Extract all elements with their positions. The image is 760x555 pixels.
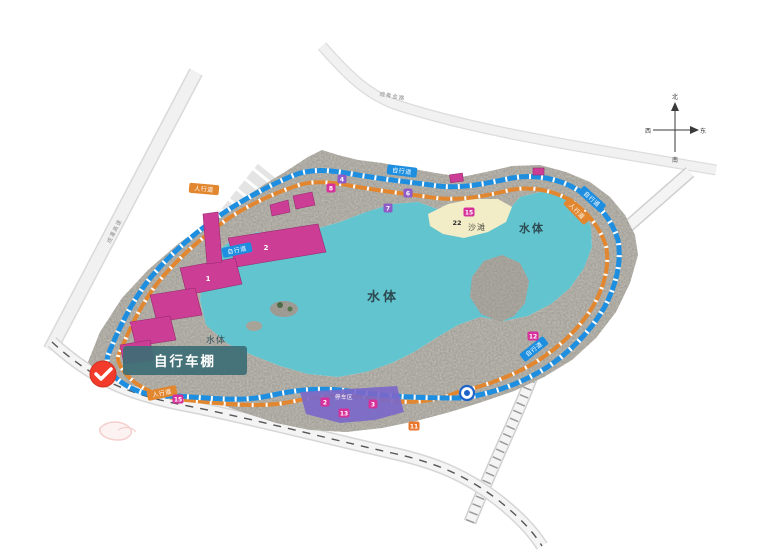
marker-8[interactable]: 8 (327, 184, 336, 193)
tooltip[interactable]: 自行车棚 (123, 346, 247, 375)
building-2-number: 2 (264, 244, 269, 252)
marker-7[interactable]: 7 (384, 204, 393, 213)
compass-east-label: 东 (700, 127, 706, 135)
svg-text:6: 6 (406, 190, 410, 197)
compass-rose: 北 南 西 东 (645, 93, 706, 164)
map-canvas: 成灌高速 成青金路 (0, 0, 760, 555)
marker-15-beach[interactable]: 15 (464, 208, 475, 217)
svg-text:4: 4 (340, 176, 344, 183)
water-label-west: 水体 (206, 334, 226, 346)
compass-west-label: 西 (645, 128, 651, 135)
water-label-east: 水体 (519, 221, 545, 235)
marker-4[interactable]: 4 (338, 175, 347, 184)
walk-path-chip-north: 人行道 (194, 184, 214, 194)
marker-12[interactable]: 12 (528, 332, 539, 341)
svg-text:13: 13 (340, 410, 348, 417)
svg-text:11: 11 (410, 423, 418, 430)
svg-text:2: 2 (323, 399, 327, 406)
park-masterplan-map: 成灌高速 成青金路 (0, 0, 760, 555)
svg-text:12: 12 (529, 333, 537, 340)
building-1-number: 1 (206, 275, 211, 283)
marker-22: 22 (452, 219, 461, 227)
marker-3[interactable]: 3 (369, 400, 378, 409)
compass-north-label: 北 (672, 93, 678, 101)
svg-text:15: 15 (465, 209, 473, 216)
sketch-marks (100, 422, 136, 440)
svg-text:3: 3 (371, 401, 375, 408)
transit-station-icon[interactable] (460, 386, 474, 400)
compass-north-arrow-icon (671, 102, 679, 111)
purple-zone-label: 停车区 (335, 393, 353, 401)
svg-text:8: 8 (329, 185, 333, 192)
tooltip-label: 自行车棚 (154, 353, 216, 370)
svg-text:7: 7 (386, 205, 390, 212)
check-pin[interactable] (90, 361, 116, 387)
water-label-main: 水体 (367, 289, 399, 305)
svg-text:15: 15 (174, 396, 182, 403)
marker-13[interactable]: 13 (339, 409, 350, 418)
marker-6[interactable]: 6 (404, 189, 413, 198)
beach-label: 沙滩 (468, 222, 486, 232)
compass-south-label: 南 (672, 156, 678, 164)
marker-2[interactable]: 2 (321, 398, 330, 407)
marker-15-south[interactable]: 15 (173, 395, 184, 404)
compass-east-arrow-icon (690, 126, 699, 134)
marker-11[interactable]: 11 (409, 422, 420, 431)
